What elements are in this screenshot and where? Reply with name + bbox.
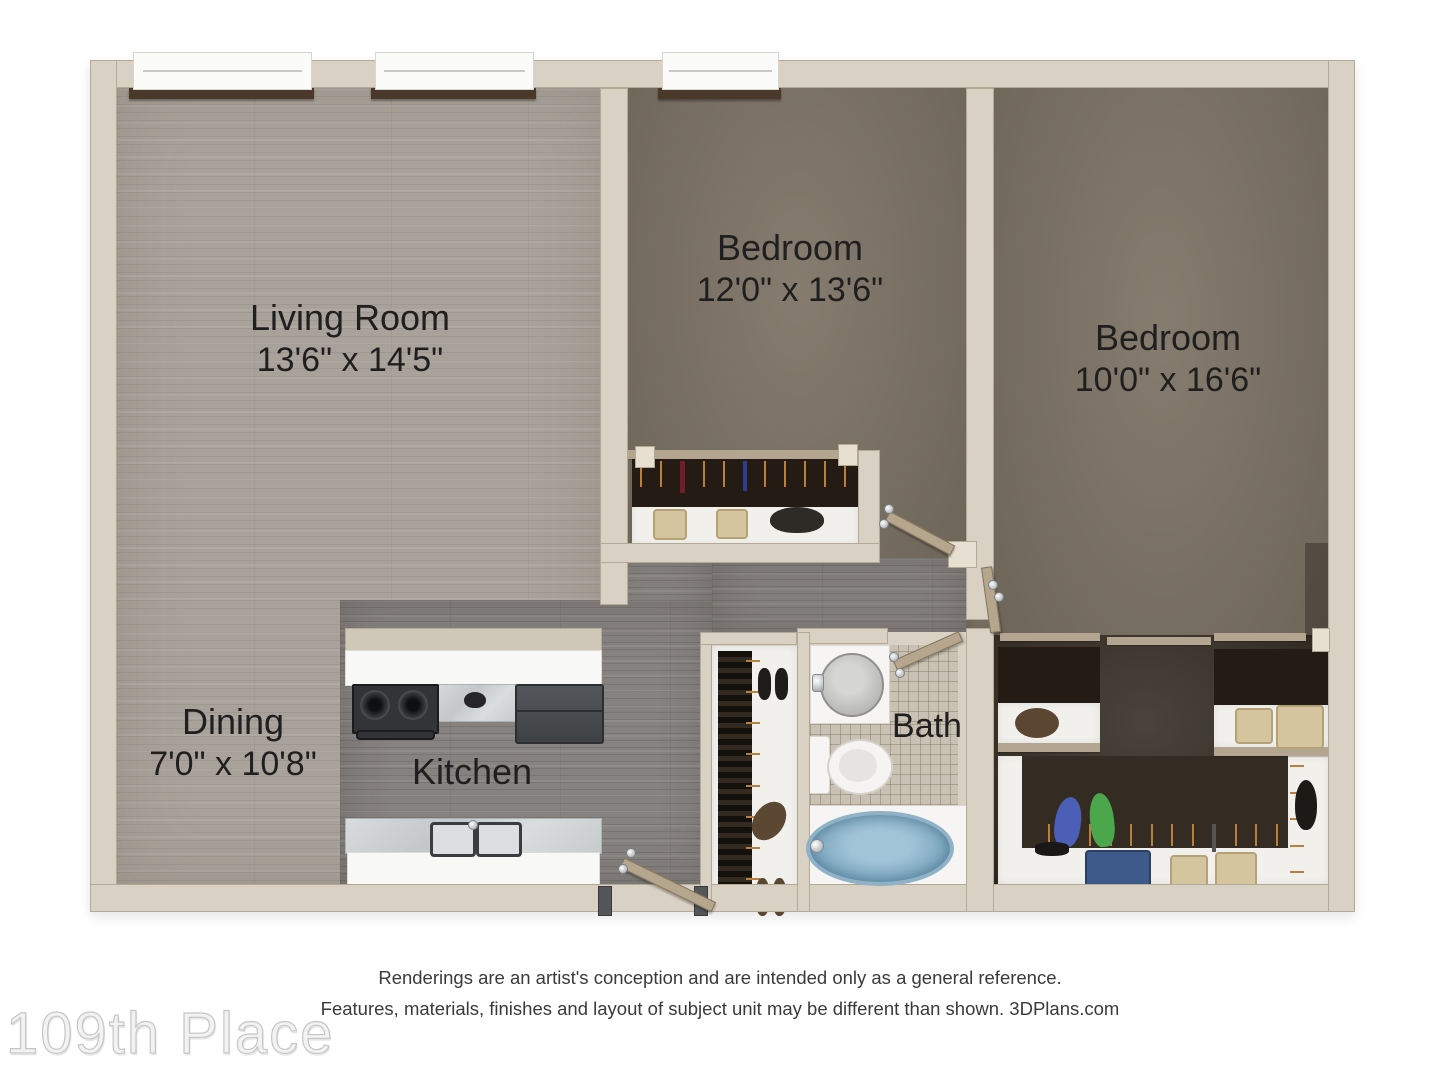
handbag [1015, 708, 1059, 738]
shoe [758, 668, 771, 700]
wall-living-bedroom1 [600, 88, 628, 605]
shoe [775, 668, 788, 700]
window-glass [384, 70, 525, 72]
wall-bath-left [797, 632, 810, 912]
bedroom2-label: Bedroom 10'0" x 16'6" [990, 316, 1346, 401]
room-name: Dining [50, 700, 416, 744]
storage-basket [653, 509, 687, 540]
tub-faucet [810, 839, 824, 853]
window-glass [143, 70, 302, 72]
room-dimensions: 10'0" x 16'6" [990, 360, 1346, 401]
wall-right [1328, 60, 1355, 912]
room-dimensions: 12'0" x 13'6" [610, 270, 970, 311]
closet-shelf-dark [998, 647, 1100, 703]
window [133, 52, 312, 90]
disclaimer-line1: Renderings are an artist's conception an… [0, 963, 1440, 994]
fridge-door-split [517, 710, 602, 712]
room-name: Kitchen [352, 750, 592, 794]
window [375, 52, 534, 90]
shoe [1035, 842, 1069, 856]
closet-hooks [746, 660, 758, 880]
closet-rod-trim [628, 450, 862, 459]
kitchen-upper-cabinet [345, 650, 602, 686]
kitchen-sink-basin [476, 822, 522, 857]
bedroom1-label: Bedroom 12'0" x 13'6" [610, 226, 970, 311]
wall-bath-right [966, 628, 994, 912]
living-room-label: Living Room 13'6" x 14'5" [140, 296, 560, 381]
door-handle [994, 592, 1004, 602]
duffel-bag [770, 507, 824, 533]
door-handle [618, 864, 628, 874]
closet-shadow [1305, 543, 1328, 638]
wall-post [838, 444, 858, 466]
room-name: Living Room [140, 296, 560, 340]
door-handle [884, 504, 894, 514]
watermark: 109th Place [6, 1000, 334, 1067]
wall-post [1312, 628, 1330, 652]
storage-basket [1235, 708, 1273, 744]
room-name: Bedroom [610, 226, 970, 270]
refrigerator [515, 684, 604, 744]
bathtub [806, 811, 954, 886]
counter-faucet [464, 692, 486, 708]
window-glass [669, 70, 773, 72]
door-handle [626, 848, 636, 858]
room-dimensions: 13'6" x 14'5" [140, 340, 560, 381]
door-handle [895, 668, 905, 678]
sink-faucet [468, 820, 478, 830]
door-handle [988, 580, 998, 590]
kitchen-half-wall [345, 628, 602, 652]
door-handle [889, 652, 899, 662]
storage-basket [716, 509, 748, 539]
bath-label: Bath [852, 706, 1002, 747]
floorplan-canvas: Living Room 13'6" x 14'5" Bedroom 12'0" … [0, 0, 1440, 1080]
room-name: Bath [852, 706, 1002, 747]
closet-threshold [1107, 637, 1211, 645]
closet-shelf-dark [1214, 649, 1328, 705]
garment-bag [1295, 780, 1317, 830]
vanity-faucet [812, 674, 824, 692]
storage-basket [1276, 705, 1324, 749]
closet-threshold [1000, 633, 1100, 641]
kitchen-lower-cabinet [347, 852, 600, 886]
door-handle [879, 519, 889, 529]
kitchen-label: Kitchen [352, 750, 592, 794]
room-name: Bedroom [990, 316, 1346, 360]
wall-closet-left [700, 632, 712, 912]
closet-shelf-edge [998, 743, 1100, 752]
entry-door-post [598, 886, 612, 916]
bedroom1-closet-shelf [632, 459, 874, 507]
window [662, 52, 779, 90]
wall-bath-top [797, 628, 888, 644]
wall-bottom [90, 884, 1355, 912]
wall-closet-lintel [700, 632, 797, 645]
toilet-seat [839, 749, 877, 781]
wall-post [635, 446, 655, 468]
hallway-floor-bath [712, 558, 966, 632]
closet-threshold [1214, 633, 1306, 641]
wall-hall-top [600, 543, 880, 563]
